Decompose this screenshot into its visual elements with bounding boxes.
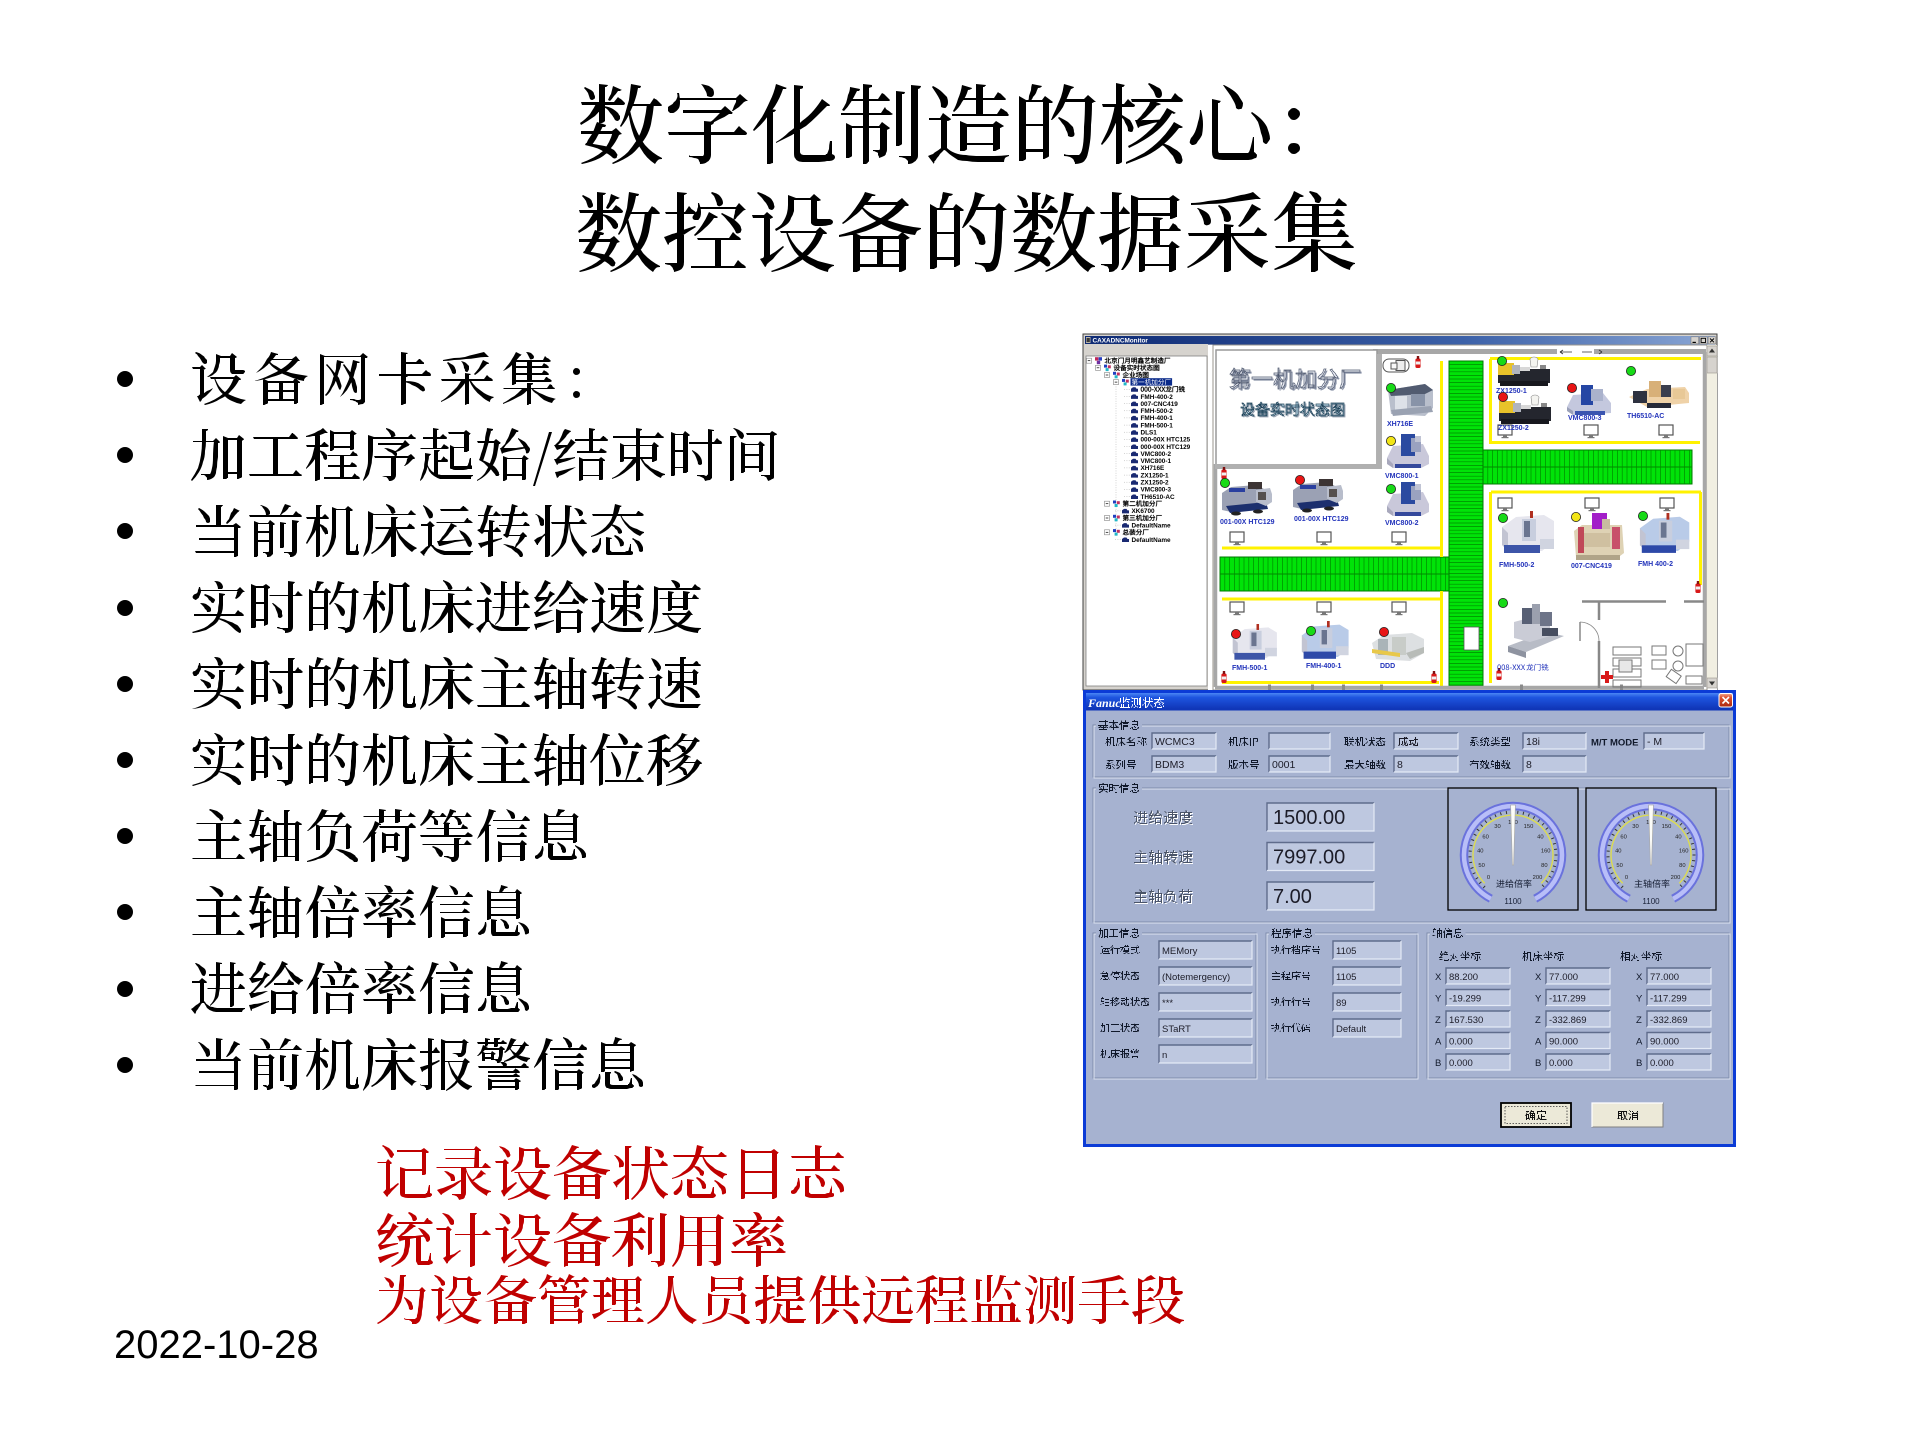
svg-text:FMH-500-1: FMH-500-1 [1232, 665, 1268, 672]
svg-text:200: 200 [1671, 875, 1681, 881]
svg-text:FMH-500-1: FMH-500-1 [1141, 422, 1174, 429]
svg-text:0.000: 0.000 [1650, 1058, 1674, 1069]
svg-text:XH716E: XH716E [1141, 465, 1166, 472]
svg-text:- M: - M [1647, 736, 1662, 748]
svg-text:8: 8 [1397, 759, 1403, 771]
svg-text:B: B [1535, 1058, 1541, 1069]
svg-text:000-00X HTC129: 000-00X HTC129 [1141, 444, 1191, 451]
svg-text:X: X [1535, 972, 1542, 983]
svg-text:VMC800-3: VMC800-3 [1568, 415, 1602, 422]
svg-text:VMC800-1: VMC800-1 [1385, 473, 1419, 480]
svg-text:-332.869: -332.869 [1650, 1015, 1688, 1026]
svg-text:DLS1: DLS1 [1141, 430, 1158, 437]
svg-text:M/T MODE: M/T MODE [1591, 738, 1639, 749]
svg-text:007-CNC419: 007-CNC419 [1141, 401, 1179, 408]
svg-text:CAXADNCMonitor: CAXADNCMonitor [1093, 338, 1149, 345]
svg-text:-19.299: -19.299 [1449, 993, 1481, 1004]
svg-text:Z: Z [1435, 1015, 1441, 1026]
svg-text:FMH-500-2: FMH-500-2 [1499, 562, 1535, 569]
svg-text:1105: 1105 [1336, 972, 1356, 983]
svg-text:1105: 1105 [1336, 946, 1356, 957]
svg-text:FMH-400-2: FMH-400-2 [1141, 394, 1174, 401]
svg-text:0.000: 0.000 [1549, 1058, 1573, 1069]
svg-text:77.000: 77.000 [1650, 972, 1679, 983]
svg-text:-332.869: -332.869 [1549, 1015, 1587, 1026]
svg-text:90.000: 90.000 [1549, 1036, 1578, 1047]
svg-text:Fanuc: Fanuc [1087, 696, 1121, 710]
svg-text:Z: Z [1535, 1015, 1541, 1026]
svg-text:ZX1250-2: ZX1250-2 [1141, 480, 1170, 487]
svg-text:80: 80 [1541, 863, 1547, 869]
svg-text:VMC800-3: VMC800-3 [1141, 487, 1172, 494]
svg-text:VMC800-2: VMC800-2 [1141, 451, 1172, 458]
svg-text:VMC800-2: VMC800-2 [1385, 520, 1419, 527]
svg-text:167.530: 167.530 [1449, 1015, 1483, 1026]
svg-text:30: 30 [1632, 824, 1638, 830]
svg-text:X: X [1435, 972, 1442, 983]
svg-text:90.000: 90.000 [1650, 1036, 1679, 1047]
svg-text:***: *** [1162, 998, 1173, 1009]
svg-text:TH6510-AC: TH6510-AC [1141, 494, 1175, 501]
svg-text:0.000: 0.000 [1449, 1058, 1473, 1069]
svg-text:FMH-500-2: FMH-500-2 [1141, 408, 1174, 415]
svg-text:-117.299: -117.299 [1549, 993, 1586, 1004]
svg-text:50: 50 [1616, 863, 1622, 869]
svg-text:000-00X HTC125: 000-00X HTC125 [1141, 437, 1191, 444]
svg-text:ZX1250-1: ZX1250-1 [1141, 472, 1170, 479]
svg-text:0: 0 [1625, 875, 1628, 881]
svg-text:Y: Y [1636, 994, 1643, 1005]
svg-text:60: 60 [1482, 835, 1488, 841]
svg-text:MEMory: MEMory [1162, 946, 1198, 957]
svg-text:A: A [1535, 1037, 1542, 1048]
svg-text:30: 30 [1494, 824, 1500, 830]
svg-text:Z: Z [1636, 1015, 1642, 1026]
svg-text:160: 160 [1541, 848, 1551, 854]
svg-text:1100: 1100 [1504, 897, 1522, 906]
svg-text:A: A [1636, 1037, 1643, 1048]
svg-text:18i: 18i [1526, 736, 1540, 748]
svg-text:XH716E: XH716E [1387, 421, 1413, 428]
svg-text:TH6510-AC: TH6510-AC [1627, 413, 1664, 420]
svg-text:Default: Default [1336, 1024, 1366, 1035]
svg-text:VMC800-1: VMC800-1 [1141, 458, 1172, 465]
svg-text:40: 40 [1675, 835, 1681, 841]
svg-text:40: 40 [1537, 835, 1543, 841]
svg-text:0.000: 0.000 [1449, 1036, 1473, 1047]
svg-text:0: 0 [1487, 875, 1490, 881]
svg-text:8: 8 [1526, 759, 1532, 771]
svg-text:150: 150 [1662, 824, 1672, 830]
svg-text:B: B [1435, 1058, 1441, 1069]
svg-text:n: n [1162, 1050, 1167, 1061]
svg-text:80: 80 [1679, 863, 1685, 869]
svg-text:40: 40 [1615, 848, 1621, 854]
svg-text:160: 160 [1679, 848, 1689, 854]
svg-text:50: 50 [1478, 863, 1484, 869]
svg-text:FMH-400-1: FMH-400-1 [1141, 415, 1174, 422]
svg-text:Y: Y [1435, 994, 1442, 1005]
svg-text:Y: Y [1535, 994, 1542, 1005]
svg-text:1100: 1100 [1642, 897, 1660, 906]
svg-text:7.00: 7.00 [1273, 886, 1312, 908]
svg-text:200: 200 [1533, 875, 1543, 881]
svg-text:0001: 0001 [1272, 759, 1296, 771]
svg-text:001-00X HTC129: 001-00X HTC129 [1220, 519, 1275, 526]
svg-text:A: A [1435, 1037, 1442, 1048]
svg-text:77.000: 77.000 [1549, 972, 1578, 983]
svg-text:FMH 400-2: FMH 400-2 [1638, 561, 1673, 568]
svg-text:STaRT: STaRT [1162, 1024, 1191, 1035]
svg-text:2022-10-28: 2022-10-28 [114, 1323, 319, 1367]
svg-text:X: X [1636, 972, 1643, 983]
svg-text:40: 40 [1477, 848, 1483, 854]
svg-text:XK6700: XK6700 [1132, 508, 1156, 515]
svg-text:007-CNC419: 007-CNC419 [1571, 563, 1612, 570]
svg-text:88.200: 88.200 [1449, 972, 1478, 983]
svg-text:-117.299: -117.299 [1650, 993, 1687, 1004]
svg-text:89: 89 [1336, 998, 1347, 1009]
svg-text:DefaultName: DefaultName [1132, 522, 1172, 529]
svg-text:WCMC3: WCMC3 [1155, 736, 1195, 748]
svg-text:FMH-400-1: FMH-400-1 [1306, 663, 1342, 670]
svg-text:7997.00: 7997.00 [1273, 847, 1345, 869]
svg-text:150: 150 [1524, 824, 1534, 830]
svg-text:ZX1250-2: ZX1250-2 [1498, 425, 1529, 432]
svg-text:1500.00: 1500.00 [1273, 807, 1345, 829]
svg-text:DefaultName: DefaultName [1132, 537, 1172, 544]
svg-text:B: B [1636, 1058, 1642, 1069]
svg-text:60: 60 [1620, 835, 1626, 841]
svg-text:001-00X HTC129: 001-00X HTC129 [1294, 516, 1349, 523]
svg-text:BDM3: BDM3 [1155, 759, 1184, 771]
svg-text:(Notemergency): (Notemergency) [1162, 972, 1230, 983]
svg-text:DDD: DDD [1380, 663, 1395, 670]
